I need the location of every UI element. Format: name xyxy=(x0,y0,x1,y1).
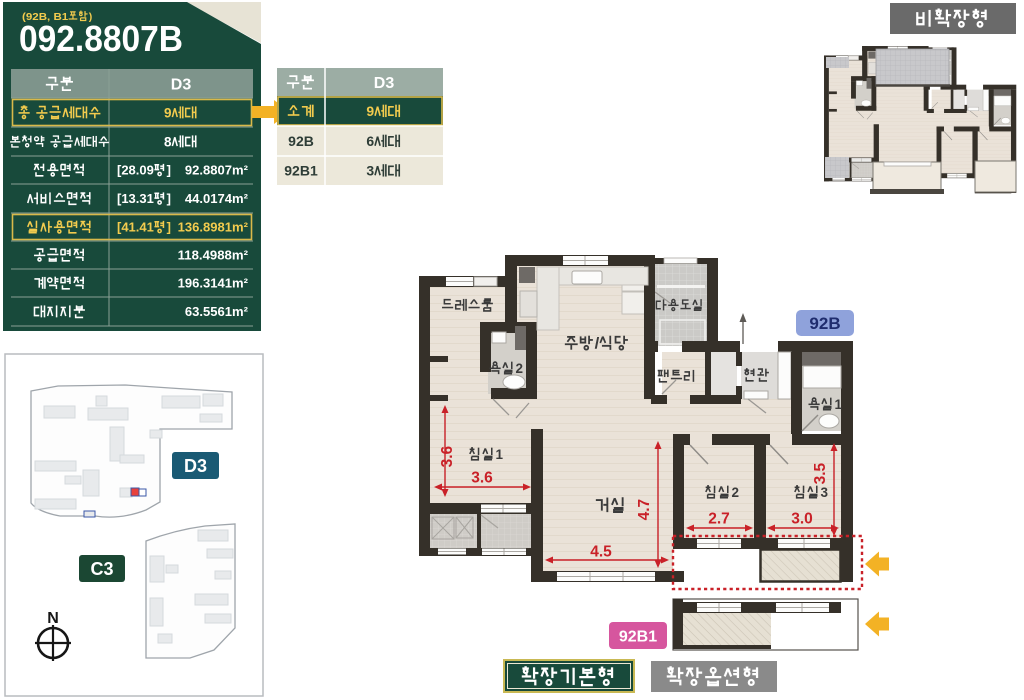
svg-text:3: 3 xyxy=(366,163,374,179)
svg-text:9: 9 xyxy=(366,103,374,119)
svg-text:C3: C3 xyxy=(90,559,113,579)
svg-text:D3: D3 xyxy=(374,75,395,92)
svg-text:092.8807B: 092.8807B xyxy=(19,18,183,59)
svg-text:2: 2 xyxy=(515,361,523,376)
svg-text:63.5561m²: 63.5561m² xyxy=(185,304,249,319)
svg-text:9: 9 xyxy=(164,105,172,120)
svg-text:]: ] xyxy=(167,220,171,235)
svg-text:2: 2 xyxy=(731,485,739,500)
svg-text:3: 3 xyxy=(820,485,828,500)
svg-text:2.7: 2.7 xyxy=(708,511,730,528)
svg-text:92B: 92B xyxy=(809,314,840,333)
svg-text:92B: 92B xyxy=(288,133,314,149)
svg-text:]: ] xyxy=(167,191,171,206)
svg-text:92B1: 92B1 xyxy=(619,628,657,645)
svg-text:4.5: 4.5 xyxy=(590,544,612,561)
svg-text:3.6: 3.6 xyxy=(471,470,493,487)
svg-text:3.6: 3.6 xyxy=(439,445,456,467)
svg-text:1: 1 xyxy=(495,447,503,462)
svg-text:D3: D3 xyxy=(184,456,207,476)
svg-text:]: ] xyxy=(167,163,171,178)
svg-text:92B1: 92B1 xyxy=(284,163,318,179)
svg-text:8: 8 xyxy=(164,134,172,149)
svg-text:92.8807m²: 92.8807m² xyxy=(185,163,249,178)
svg-text:[41.41: [41.41 xyxy=(117,220,154,235)
svg-text:44.0174m²: 44.0174m² xyxy=(185,191,249,206)
svg-text:/: / xyxy=(595,336,600,353)
svg-text:[28.09: [28.09 xyxy=(117,163,154,178)
svg-text:6: 6 xyxy=(366,133,374,149)
svg-text:D3: D3 xyxy=(171,76,192,93)
svg-text:1: 1 xyxy=(834,397,842,412)
svg-text:N: N xyxy=(47,610,59,627)
svg-text:118.4988m²: 118.4988m² xyxy=(178,248,249,263)
svg-text:3.0: 3.0 xyxy=(791,511,813,528)
svg-text:4.7: 4.7 xyxy=(636,499,653,521)
svg-text:[13.31: [13.31 xyxy=(117,191,154,206)
svg-text:136.8981m²: 136.8981m² xyxy=(178,220,249,235)
svg-text:3.5: 3.5 xyxy=(812,462,829,484)
svg-text:196.3141m²: 196.3141m² xyxy=(178,276,249,291)
